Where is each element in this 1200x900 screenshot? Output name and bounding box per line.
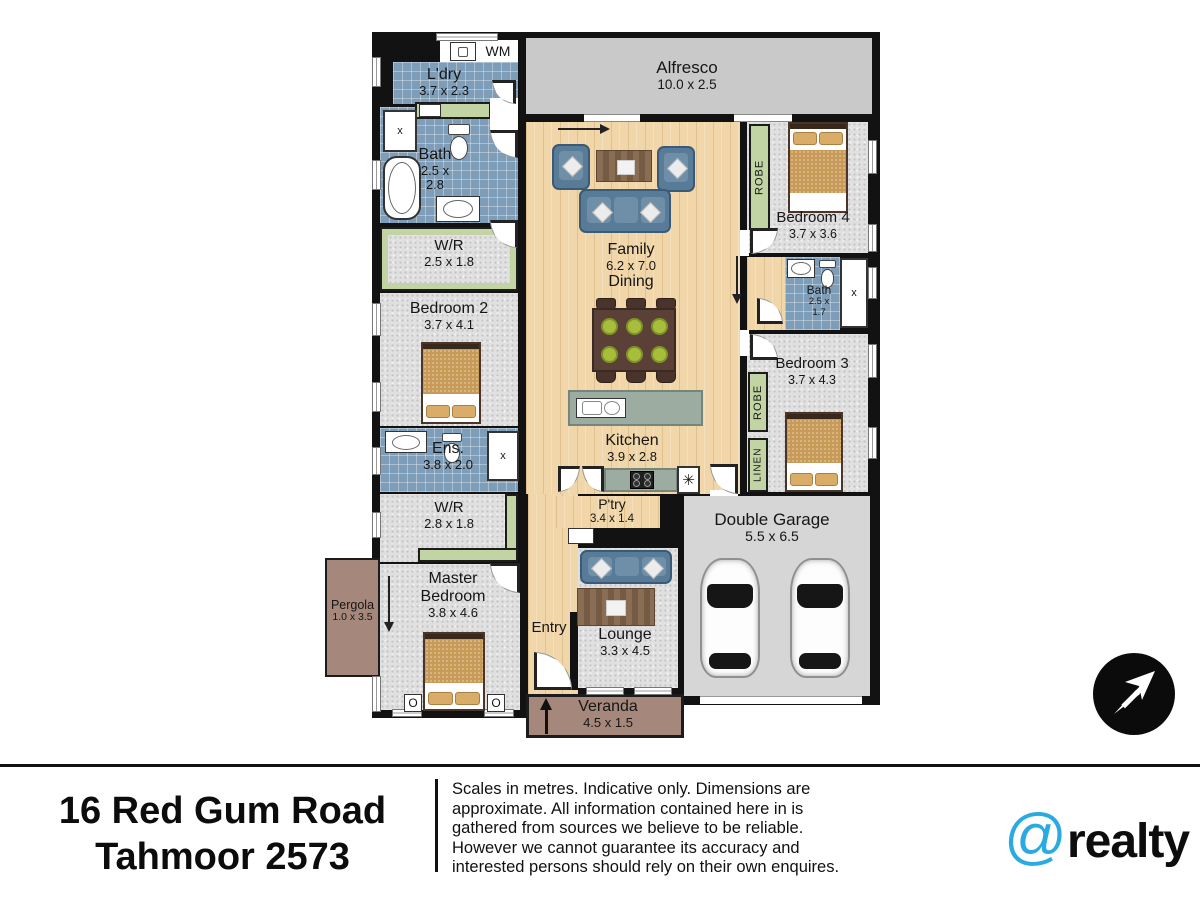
window-lounge-a	[586, 687, 624, 695]
washing-machine-door	[458, 47, 468, 57]
label-walkin-robe1: W/R 2.5 x 1.8	[402, 238, 496, 269]
garage-door-opening	[700, 696, 862, 704]
vanity-bath2-icon	[787, 259, 815, 278]
flow-arrow-right	[558, 124, 610, 134]
window-laundry-top	[436, 33, 498, 41]
robe-bedroom3: ROBE	[748, 372, 768, 432]
shower-bath2: x	[840, 258, 868, 328]
kitchen-island-icon	[568, 390, 703, 426]
lamp-icon: O	[408, 696, 417, 710]
door-gap-bed4	[740, 230, 749, 256]
window-bedroom3-a	[868, 344, 877, 378]
label-master-bedroom: Master Bedroom 3.8 x 4.6	[400, 570, 506, 620]
sofa-lounge-icon	[580, 550, 672, 584]
address-line1: 16 Red Gum Road	[25, 788, 420, 834]
window-bedroom3-b	[868, 427, 877, 459]
linen-cupboard: LINEN	[748, 438, 768, 492]
label-ensuite: Ens. 3.8 x 2.0	[398, 440, 498, 472]
alfresco-opening-2	[734, 114, 792, 122]
window-bedroom2-b	[372, 382, 381, 412]
walkin-robe2-shelf-bottom	[418, 548, 518, 562]
pantry-shelf	[568, 528, 594, 544]
footer-divider-top	[0, 764, 1200, 767]
label-pantry: P'try 3.4 x 1.4	[584, 497, 640, 526]
logo-name: realty	[1067, 818, 1189, 866]
label-pergola: Pergola 1.0 x 3.5	[326, 598, 379, 624]
label-bedroom4: Bedroom 4 3.7 x 3.6	[768, 210, 858, 241]
shower-x-label: x	[397, 125, 403, 137]
label-entry: Entry	[524, 620, 574, 637]
agency-logo: @ realty	[1004, 806, 1189, 868]
dishwasher-icon: ✳	[677, 466, 700, 494]
kitchen-bench-icon	[604, 468, 678, 492]
flow-arrow-down-hall	[732, 256, 742, 304]
label-kitchen: Kitchen 3.9 x 2.8	[600, 432, 664, 464]
address-line2: Tahmoor 2573	[25, 834, 420, 880]
label-bedroom2: Bedroom 2 3.7 x 4.1	[396, 300, 502, 332]
label-laundry: L'dry 3.7 x 2.3	[398, 66, 490, 98]
armchair-right-icon	[657, 146, 695, 192]
robe-bedroom4: ROBE	[749, 124, 770, 230]
label-alfresco: Alfresco 10.0 x 2.5	[646, 58, 728, 92]
window-bath1	[372, 160, 381, 190]
family-rug	[596, 150, 652, 182]
label-bath2: Bath 2.5 x 1.7	[798, 284, 840, 319]
label-lounge: Lounge 3.3 x 4.5	[592, 626, 658, 658]
bed-bedroom4-icon	[788, 122, 848, 213]
bed-bedroom2-icon	[421, 342, 481, 424]
robe-label: ROBE	[750, 374, 766, 430]
window-master-left	[372, 676, 381, 712]
bedside-table-left: O	[404, 694, 422, 712]
bedside-table-right: O	[487, 694, 505, 712]
window-bedroom4-b	[868, 224, 877, 252]
label-bedroom3: Bedroom 3 3.7 x 4.3	[766, 356, 858, 387]
robe-label: ROBE	[751, 126, 768, 228]
window-ensuite	[372, 447, 381, 475]
car-icon	[790, 558, 850, 678]
washing-machine-icon	[450, 42, 476, 61]
label-walkin-robe2: W/R 2.8 x 1.8	[402, 500, 496, 531]
label-family-dining: Family 6.2 x 7.0 Dining	[596, 241, 666, 291]
window-bath2	[868, 267, 877, 299]
shower-x-label: x	[500, 450, 506, 462]
sofa-family-icon	[579, 189, 671, 233]
bed-bedroom3-icon	[785, 412, 843, 492]
shower-x-label: x	[851, 287, 857, 299]
appliance-symbol: ✳	[682, 471, 695, 489]
window-lounge-b	[634, 687, 672, 695]
car-icon	[700, 558, 760, 678]
kitchen-sink-icon	[576, 398, 626, 418]
footer-divider-vertical	[435, 779, 438, 872]
label-wm: WM	[482, 44, 514, 60]
label-veranda: Veranda 4.5 x 1.5	[566, 698, 650, 730]
vanity-bath1-icon	[436, 196, 480, 222]
lounge-rug	[577, 588, 655, 626]
logo-at-symbol: @	[1004, 806, 1067, 868]
window-bedroom4-a	[868, 140, 877, 174]
linen-label: LINEN	[750, 440, 766, 490]
label-garage: Double Garage 5.5 x 6.5	[706, 510, 838, 545]
window-bedroom2-a	[372, 303, 381, 336]
dining-table-icon	[592, 308, 676, 372]
door-gap-bed3	[740, 330, 749, 356]
alfresco-opening-1	[584, 114, 640, 122]
label-bath1: Bath 2.5 x 2.8	[405, 146, 465, 193]
bed-master-icon	[423, 632, 485, 711]
armchair-left-icon	[552, 144, 590, 190]
disclaimer-text: Scales in metres. Indicative only. Dimen…	[452, 780, 852, 878]
floorplan-page: ROBE ROBE LINEN x	[0, 0, 1200, 900]
north-entry-arrow-up	[540, 698, 552, 734]
property-address: 16 Red Gum Road Tahmoor 2573	[25, 788, 420, 880]
lamp-icon: O	[491, 696, 500, 710]
flow-arrow-down-master	[384, 576, 394, 632]
laundry-tub	[419, 104, 441, 117]
cooktop-icon	[630, 471, 654, 489]
window-laundry-left	[372, 57, 381, 87]
compass-icon	[1092, 652, 1176, 736]
window-walkin2	[372, 512, 381, 538]
